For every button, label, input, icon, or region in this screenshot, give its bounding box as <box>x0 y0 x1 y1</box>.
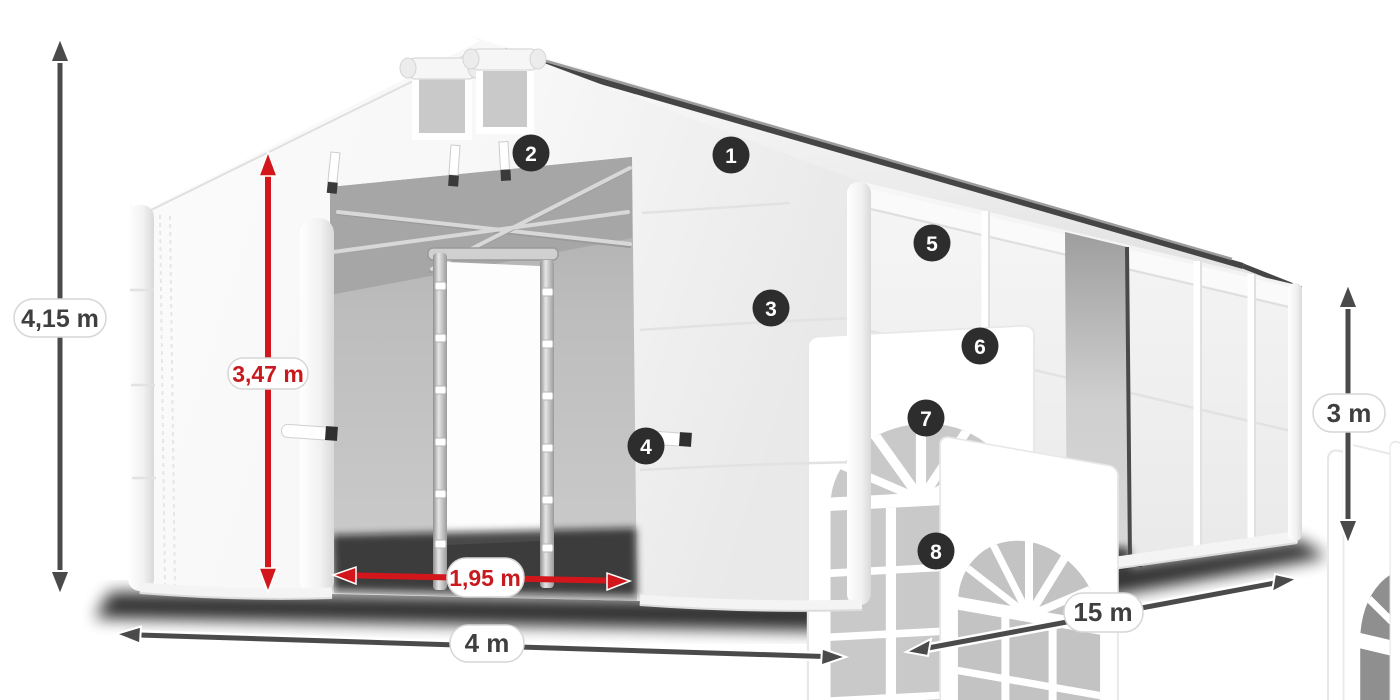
callout-badge-1: 1 <box>713 137 750 174</box>
callout-number: 6 <box>974 336 986 359</box>
interior-window-right <box>940 436 1118 700</box>
left-corner-roll <box>128 205 154 591</box>
arrowhead-down-icon <box>51 571 70 595</box>
callout-badge-2: 2 <box>513 135 550 172</box>
callout-badge-7: 7 <box>908 400 945 437</box>
callout-number: 8 <box>930 541 942 564</box>
front-skirt-right <box>640 600 862 606</box>
callout-badge-6: 6 <box>962 328 999 365</box>
dim-label-side-height: 3 m <box>1327 398 1372 428</box>
callout-number: 2 <box>525 143 537 166</box>
rear-door-pole-right <box>540 260 554 588</box>
dim-label-total-height: 4,15 m <box>21 305 99 333</box>
arrowhead-up-icon <box>51 38 70 62</box>
callout-number: 1 <box>725 145 737 168</box>
dim-label-inner-height: 3,47 m <box>232 361 304 387</box>
callout-badge-5: 5 <box>914 225 951 262</box>
front-right-corner-roll <box>847 182 871 605</box>
dim-label-entrance-width: 1,95 m <box>449 565 521 591</box>
dim-label-length: 15 m <box>1073 597 1132 627</box>
arrowhead-left-icon <box>116 627 141 644</box>
left-door-edge-roll <box>300 218 334 596</box>
rear-door-pole-left <box>433 253 447 590</box>
callout-number: 5 <box>926 233 938 256</box>
callout-badge-3: 3 <box>753 290 790 327</box>
dim-label-width: 4 m <box>465 628 510 658</box>
arrowhead-right-icon <box>1272 574 1297 592</box>
arrowhead-up-icon <box>1339 284 1358 308</box>
vent-window-left <box>400 58 484 140</box>
dim-total-height: 4,15 m <box>14 38 106 595</box>
tent-dimension-diagram: 4,15 m 3,47 m 1,95 m 4 m <box>0 0 1400 700</box>
callout-badge-4: 4 <box>628 428 665 465</box>
side-window-3 <box>1390 440 1400 700</box>
callout-number: 4 <box>640 436 652 459</box>
rear-door-gap <box>447 262 540 545</box>
interior-back-beam <box>428 248 558 260</box>
canvas: 4,15 m 3,47 m 1,95 m 4 m <box>0 0 1400 700</box>
far-corner-roll <box>1288 283 1302 541</box>
callout-number: 3 <box>765 298 777 321</box>
dim-width: 4 m <box>116 625 846 666</box>
front-skirt-left <box>140 588 332 594</box>
callout-number: 7 <box>920 408 932 431</box>
callout-badge-8: 8 <box>918 533 955 570</box>
